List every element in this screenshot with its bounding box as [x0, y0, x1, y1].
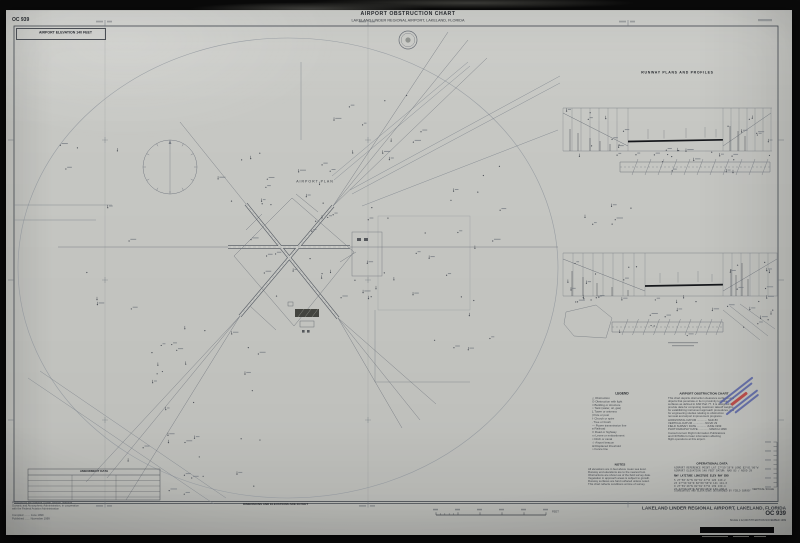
chart-number-top: OC 939: [12, 17, 29, 23]
range-ellipse: [18, 38, 558, 498]
chart-linework: [0, 0, 800, 543]
legend-item: ▭ Levee or embankment: [592, 434, 657, 437]
vertical-scale-label: VERTICAL SCALE: [737, 488, 774, 491]
photo-of-airport-obstruction-chart: { "header": { "chart_no": "OC 939", "tit…: [0, 0, 800, 543]
profile-caption-smudge: [668, 342, 698, 346]
legend-item: ∙ Tree or brush: [592, 420, 657, 423]
legend-item: Ʇ Tower or antenna: [592, 410, 657, 413]
legend-items: △ Obstruction⊙ Obstruction with light□ B…: [592, 397, 657, 452]
legend-item: △ Obstruction: [592, 397, 657, 400]
description-line: flight operations at this airport.: [668, 438, 736, 441]
airport-plan-label: AIRPORT PLAN: [288, 180, 343, 184]
datum-line: PHOTOGRAPHY DATE ............. MARCH 199…: [668, 427, 736, 430]
description-title: AIRPORT OBSTRUCTION CHART: [677, 392, 731, 396]
legend-item: □ Building or structure: [592, 403, 657, 406]
description-extra: Consult current Flight Information Publi…: [668, 432, 736, 441]
vertical-scale-labels: [765, 441, 771, 487]
chart-title: AIRPORT OBSTRUCTION CHART: [200, 11, 616, 17]
notes-lines: All elevations are in feet above mean se…: [588, 468, 658, 486]
operational-subtitle: AIRPORT REFERENCE POINT LAT 27°59'19"N L…: [674, 467, 749, 473]
scale-bar-labels: [433, 509, 548, 511]
airport-elevation-note: AIRPORT ELEVATION 140 FEET: [39, 31, 83, 35]
legend-item: ═ Road or highway: [592, 431, 657, 434]
agency-seal-icon: [399, 31, 417, 49]
runway-profile-2: [563, 253, 778, 340]
runways: [228, 204, 350, 318]
airport-elevation-box: AIRPORT ELEVATION 140 FEET: [16, 28, 106, 40]
footer-chart-number: OC 939: [586, 511, 786, 517]
runway-profile-1: [563, 108, 772, 175]
runway-profiles-title: RUNWAY PLANS AND PROFILES: [639, 71, 717, 75]
legend-item: ⊙ Obstruction with light: [592, 400, 657, 403]
scale-bar-unit-label: FEET: [552, 511, 559, 514]
operational-header-row: RWY LATITUDE LONGITUDE ELEV RWY END: [674, 475, 749, 478]
legend-item: ⌁ Fence line: [592, 448, 657, 451]
footer-imprint-smudge: [733, 536, 749, 537]
legend-item: ⊞ Displaced threshold: [592, 444, 657, 447]
approach-surface-lines: [58, 32, 558, 500]
operational-data-title: OPERATIONAL DATA: [692, 462, 732, 466]
legend-item: ≈ Ditch or canal: [592, 437, 657, 440]
roads-property-lines: [14, 62, 560, 504]
operational-subline: AIRPORT ELEVATION 140 FEET DATUM: NAD 83…: [674, 469, 749, 472]
legend-item: | Pole or post: [592, 414, 657, 417]
footer-imprint-smudge: [754, 536, 766, 537]
legend-item: ☆ Airport beacon: [592, 441, 657, 444]
footer-black-bar: [700, 527, 774, 533]
legend-title: LEGEND: [607, 392, 637, 396]
compass-rose-icon: [143, 140, 197, 194]
legend-item: † Church or spire: [592, 417, 657, 420]
dimensions-note: DIMENSIONS AND ELEVATIONS ARE IN FEET: [243, 503, 308, 506]
notes-title: NOTES: [608, 463, 632, 467]
amendment-table-title: AMENDMENT DATA: [76, 470, 112, 473]
footer-airport-name: LAKELAND LINDER REGIONAL AIRPORT, LAKELA…: [623, 505, 786, 511]
legend-item: ≡ Railroad: [592, 427, 657, 430]
footer-scale-note: SCALE 1:12,000 5TH EDITION NOVEMBER 1999: [686, 519, 786, 522]
footer-imprint-smudge: [702, 536, 728, 537]
publisher-credit: Produced by the National Ocean Service, …: [12, 502, 87, 511]
publisher-dates: Compiled ........ June 1999Published ...…: [12, 514, 72, 521]
chart-subtitle: LAKELAND LINDER REGIONAL AIRPORT, LAKELA…: [304, 18, 512, 23]
obstruction-marks: [60, 95, 774, 495]
neatline: [14, 26, 778, 504]
vertical-scale: [774, 442, 778, 487]
scale-bar: [436, 512, 546, 515]
credit-line: Published ....... November 1999: [12, 517, 72, 520]
legend-item: — Power transmission line: [592, 424, 657, 427]
